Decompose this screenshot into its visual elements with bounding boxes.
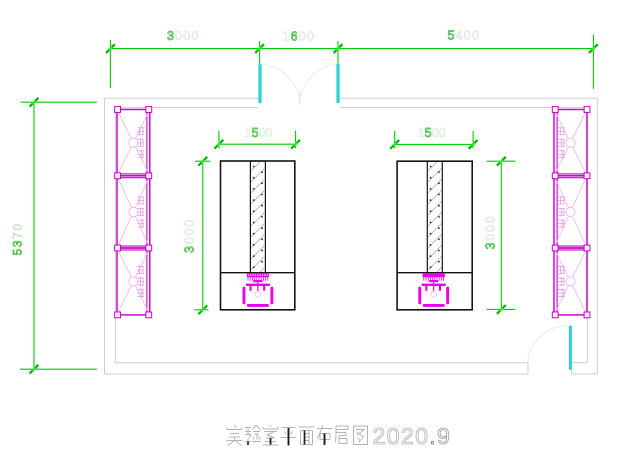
svg-text:3000: 3000: [182, 218, 196, 253]
svg-text:1600: 1600: [283, 30, 316, 44]
svg-text:3000: 3000: [167, 29, 200, 43]
svg-text:3000: 3000: [484, 214, 498, 249]
svg-text:5400: 5400: [448, 29, 481, 43]
svg-text:1500: 1500: [418, 126, 446, 140]
svg-text:2020.9: 2020.9: [373, 423, 452, 449]
svg-text:1500: 1500: [245, 126, 273, 140]
svg-text:5370: 5370: [10, 222, 24, 255]
